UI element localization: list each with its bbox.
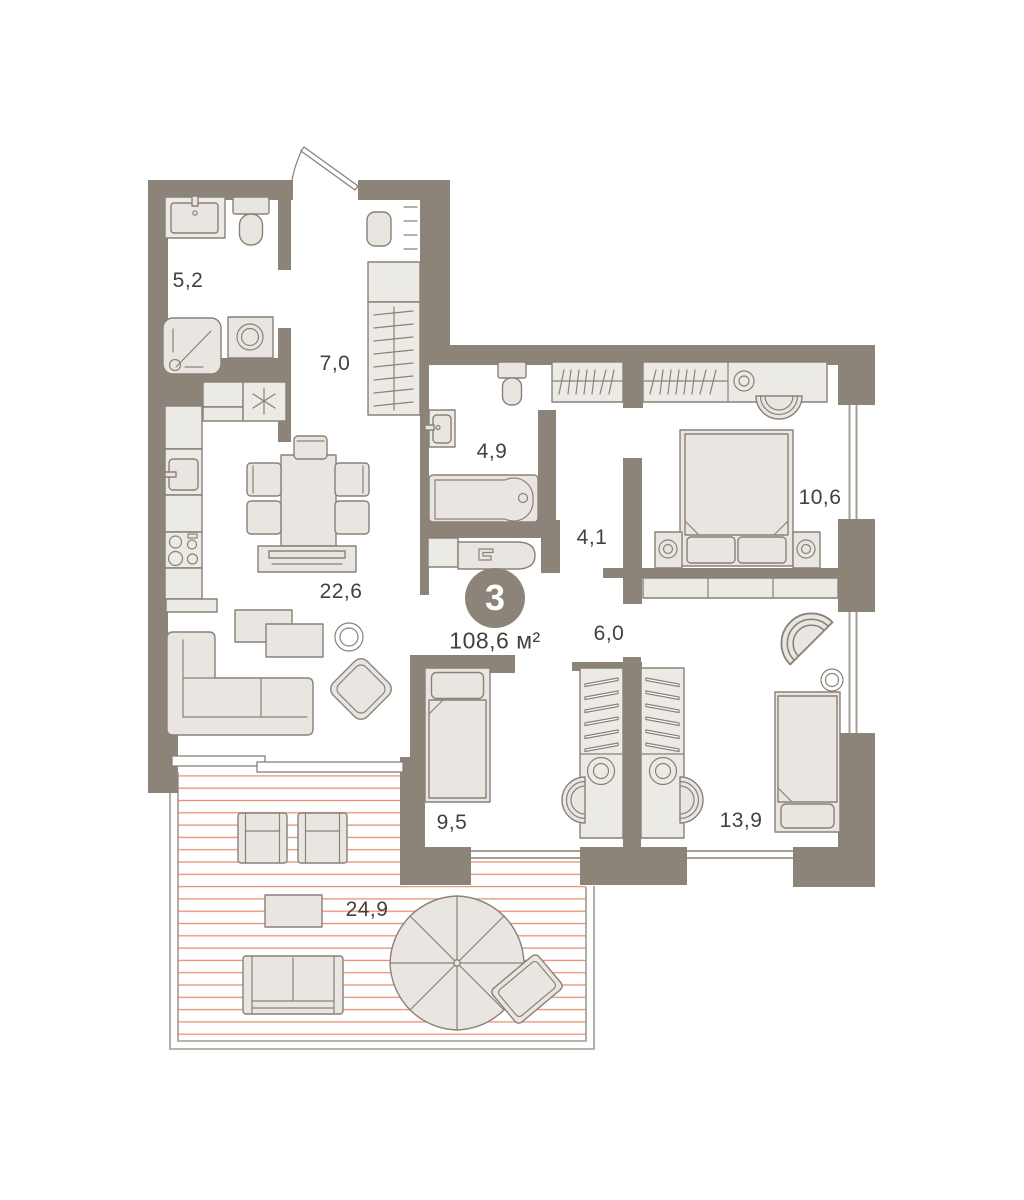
round-rug — [335, 623, 363, 651]
entrance-door — [291, 147, 358, 190]
toilet-bowl — [503, 378, 522, 405]
room-area-label-bedroom-3: 13,9 — [720, 809, 763, 833]
dining-table — [281, 455, 336, 546]
vanity-chair — [756, 396, 802, 419]
chair — [294, 436, 327, 459]
coat-hooks — [404, 207, 417, 263]
console-shelf — [458, 542, 535, 569]
floor-plan-page: 5,2 7,0 4,9 4,1 10,6 22,6 6,0 9,5 13,9 2… — [0, 0, 1024, 1200]
desk-chair — [680, 777, 703, 823]
pillow — [738, 537, 786, 563]
kitchen-fixtures — [165, 382, 369, 612]
corridor-wardrobes — [552, 362, 827, 419]
toilet-bowl — [240, 214, 263, 245]
coffee-table — [266, 624, 323, 657]
chair — [335, 501, 369, 534]
pillow — [687, 537, 735, 563]
room-area-label-bedroom-2: 9,5 — [437, 811, 468, 835]
room-area-label-bathroom: 4,9 — [477, 440, 508, 464]
apartment-rooms-count: 3 — [485, 580, 505, 616]
room-area-label-bedroom-1: 10,6 — [799, 486, 842, 510]
fan-armchair — [769, 601, 832, 664]
tv-stand — [258, 546, 356, 572]
armchair — [327, 655, 395, 723]
room-area-label-bathroom-small: 5,2 — [173, 269, 204, 293]
bedroom-1-furniture — [655, 430, 820, 568]
pillow — [432, 673, 484, 699]
bedroom-3-furniture — [641, 578, 843, 838]
pillow — [781, 804, 834, 828]
terrace-sliding-door — [172, 756, 403, 772]
bench — [367, 212, 391, 246]
chair — [335, 463, 369, 496]
room-area-label-terrace: 24,9 — [346, 898, 389, 922]
toilet-tank — [498, 362, 526, 378]
chair — [247, 501, 281, 534]
total-area-label: 108,6 м² — [449, 628, 540, 655]
apartment-rooms-badge: 3 — [465, 568, 525, 628]
room-area-label-corridor: 4,1 — [577, 526, 608, 550]
room-area-label-hallway: 7,0 — [320, 352, 351, 376]
parasol — [390, 896, 524, 1030]
washing-machine — [228, 317, 273, 358]
bathtub — [429, 475, 538, 522]
sideboard — [643, 578, 838, 598]
desk-chair — [562, 777, 585, 823]
living-room-furniture — [167, 610, 395, 735]
chair — [247, 463, 281, 496]
tv — [269, 551, 345, 558]
toilet-tank — [233, 197, 269, 214]
room-area-label-corridor-2: 6,0 — [594, 622, 625, 646]
room-area-label-kitchen-living: 22,6 — [320, 580, 363, 604]
terrace-table — [265, 895, 322, 927]
shower — [163, 318, 221, 374]
